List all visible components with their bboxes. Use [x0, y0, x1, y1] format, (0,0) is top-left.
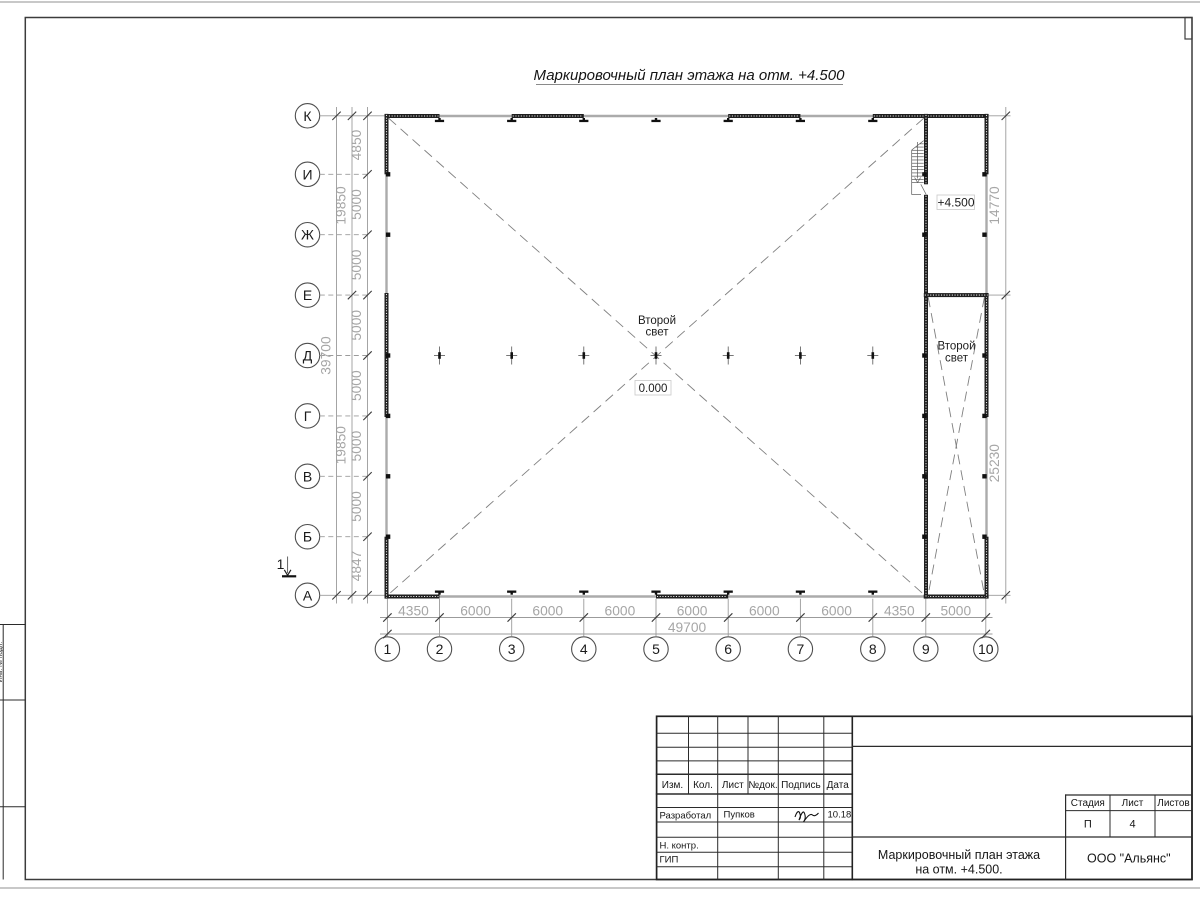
svg-text:5: 5 [652, 641, 660, 657]
svg-text:9: 9 [922, 641, 930, 657]
svg-text:П: П [1084, 819, 1092, 831]
svg-text:5000: 5000 [349, 189, 364, 220]
svg-text:4350: 4350 [884, 603, 915, 618]
svg-text:4850: 4850 [349, 129, 364, 160]
svg-text:Маркировочный план этажа на от: Маркировочный план этажа на отм. +4.500 [534, 67, 846, 84]
svg-text:Д: Д [303, 348, 313, 364]
svg-text:Е: Е [303, 287, 312, 303]
svg-text:В: В [303, 468, 312, 484]
svg-text:свет: свет [945, 353, 969, 365]
svg-text:Второй: Второй [638, 315, 676, 327]
svg-text:49700: 49700 [668, 620, 707, 635]
svg-text:Инв. № подл.: Инв. № подл. [0, 642, 4, 683]
svg-text:Г: Г [304, 408, 312, 424]
svg-text:Второй: Второй [937, 341, 975, 353]
svg-text:6: 6 [724, 641, 732, 657]
svg-text:А: А [303, 587, 313, 603]
svg-text:4350: 4350 [398, 603, 429, 618]
svg-text:5000: 5000 [349, 370, 364, 401]
svg-text:Лист: Лист [1122, 798, 1144, 809]
svg-text:2: 2 [436, 641, 444, 657]
svg-text:19850: 19850 [334, 426, 349, 465]
svg-text:14770: 14770 [987, 186, 1002, 225]
svg-text:Стадия: Стадия [1071, 798, 1105, 809]
svg-text:25230: 25230 [987, 444, 1002, 483]
svg-text:10.18: 10.18 [828, 810, 852, 821]
svg-text:39700: 39700 [319, 336, 334, 375]
svg-text:4: 4 [1129, 819, 1135, 831]
svg-text:Дата: Дата [827, 780, 850, 791]
svg-text:№док.: №док. [748, 780, 777, 791]
svg-text:6000: 6000 [605, 603, 636, 618]
svg-text:ГИП: ГИП [660, 855, 679, 866]
svg-text:Разработал: Разработал [660, 810, 712, 821]
svg-text:Изм.: Изм. [662, 780, 683, 791]
svg-text:6000: 6000 [821, 603, 852, 618]
svg-text:Лист: Лист [722, 780, 744, 791]
svg-text:Б: Б [303, 529, 312, 545]
svg-text:5000: 5000 [349, 491, 364, 522]
svg-text:ООО "Альянс": ООО "Альянс" [1087, 852, 1171, 866]
svg-text:6000: 6000 [532, 603, 563, 618]
svg-text:Ж: Ж [301, 227, 314, 243]
svg-text:10: 10 [978, 641, 994, 657]
svg-text:И: И [302, 166, 312, 182]
svg-text:Пупков: Пупков [724, 810, 755, 821]
svg-text:19850: 19850 [334, 186, 349, 225]
svg-text:4: 4 [580, 641, 588, 657]
svg-text:3: 3 [508, 641, 516, 657]
svg-text:4847: 4847 [349, 551, 364, 582]
svg-text:Маркировочный план этажа: Маркировочный план этажа [878, 848, 1040, 862]
svg-text:5000: 5000 [940, 603, 971, 618]
svg-text:6000: 6000 [749, 603, 780, 618]
svg-text:Листов: Листов [1157, 798, 1190, 809]
svg-text:1: 1 [384, 641, 392, 657]
svg-text:6000: 6000 [677, 603, 708, 618]
svg-text:Подпись: Подпись [781, 780, 821, 791]
svg-text:+4.500: +4.500 [937, 195, 974, 209]
svg-text:8: 8 [869, 641, 877, 657]
svg-text:Кол.: Кол. [693, 780, 713, 791]
svg-text:Н. контр.: Н. контр. [660, 841, 699, 852]
svg-text:6000: 6000 [460, 603, 491, 618]
svg-text:5000: 5000 [349, 430, 364, 461]
svg-text:5000: 5000 [349, 310, 364, 341]
svg-text:на отм. +4.500.: на отм. +4.500. [915, 863, 1002, 877]
svg-text:К: К [303, 108, 312, 124]
svg-text:5000: 5000 [349, 249, 364, 280]
svg-text:свет: свет [645, 327, 669, 339]
svg-text:1: 1 [277, 556, 285, 572]
svg-text:7: 7 [797, 641, 805, 657]
svg-text:0.000: 0.000 [639, 383, 668, 395]
